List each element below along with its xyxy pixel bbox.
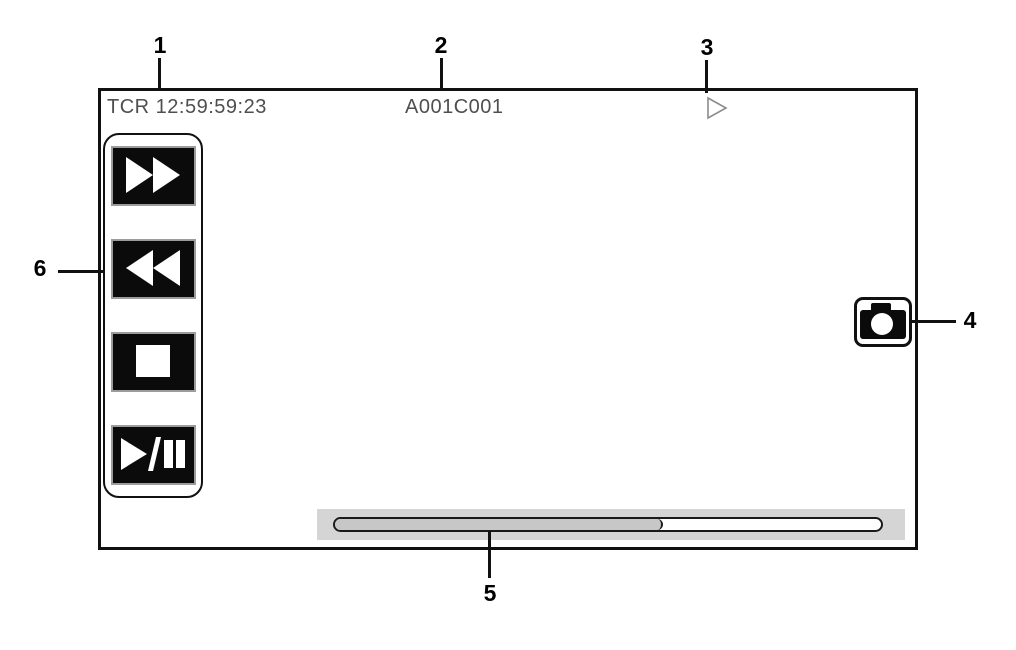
camera-icon <box>860 303 906 342</box>
callout-5: 5 <box>476 581 504 605</box>
clip-name-display: A001C001 <box>405 97 504 117</box>
leader-line-5 <box>488 531 491 578</box>
playback-control-group <box>103 133 203 498</box>
stop-button[interactable] <box>111 332 196 392</box>
manual-figure: TCR 12:59:59:23 A001C001 <box>0 0 1016 650</box>
fast-forward-icon <box>126 157 180 196</box>
playback-screen: TCR 12:59:59:23 A001C001 <box>98 88 918 550</box>
leader-line-6 <box>58 270 104 273</box>
play-icon <box>705 96 729 120</box>
rewind-icon <box>126 250 180 289</box>
photo-capture-button[interactable] <box>854 297 912 347</box>
progress-bar[interactable] <box>333 517 883 532</box>
leader-line-3 <box>705 60 708 93</box>
progress-fill <box>335 519 663 530</box>
callout-2: 2 <box>427 33 455 57</box>
play-pause-icon <box>121 437 185 474</box>
timecode-display: TCR 12:59:59:23 <box>107 97 267 117</box>
callout-6: 6 <box>26 256 54 280</box>
progress-band <box>317 509 905 540</box>
callout-3: 3 <box>693 35 721 59</box>
fast-forward-button[interactable] <box>111 146 196 206</box>
leader-line-4 <box>911 320 956 323</box>
leader-line-2 <box>440 58 443 90</box>
rewind-button[interactable] <box>111 239 196 299</box>
callout-4: 4 <box>956 308 984 332</box>
stop-icon <box>136 345 170 380</box>
leader-line-1 <box>158 58 161 90</box>
play-pause-button[interactable] <box>111 425 196 485</box>
callout-1: 1 <box>146 33 174 57</box>
